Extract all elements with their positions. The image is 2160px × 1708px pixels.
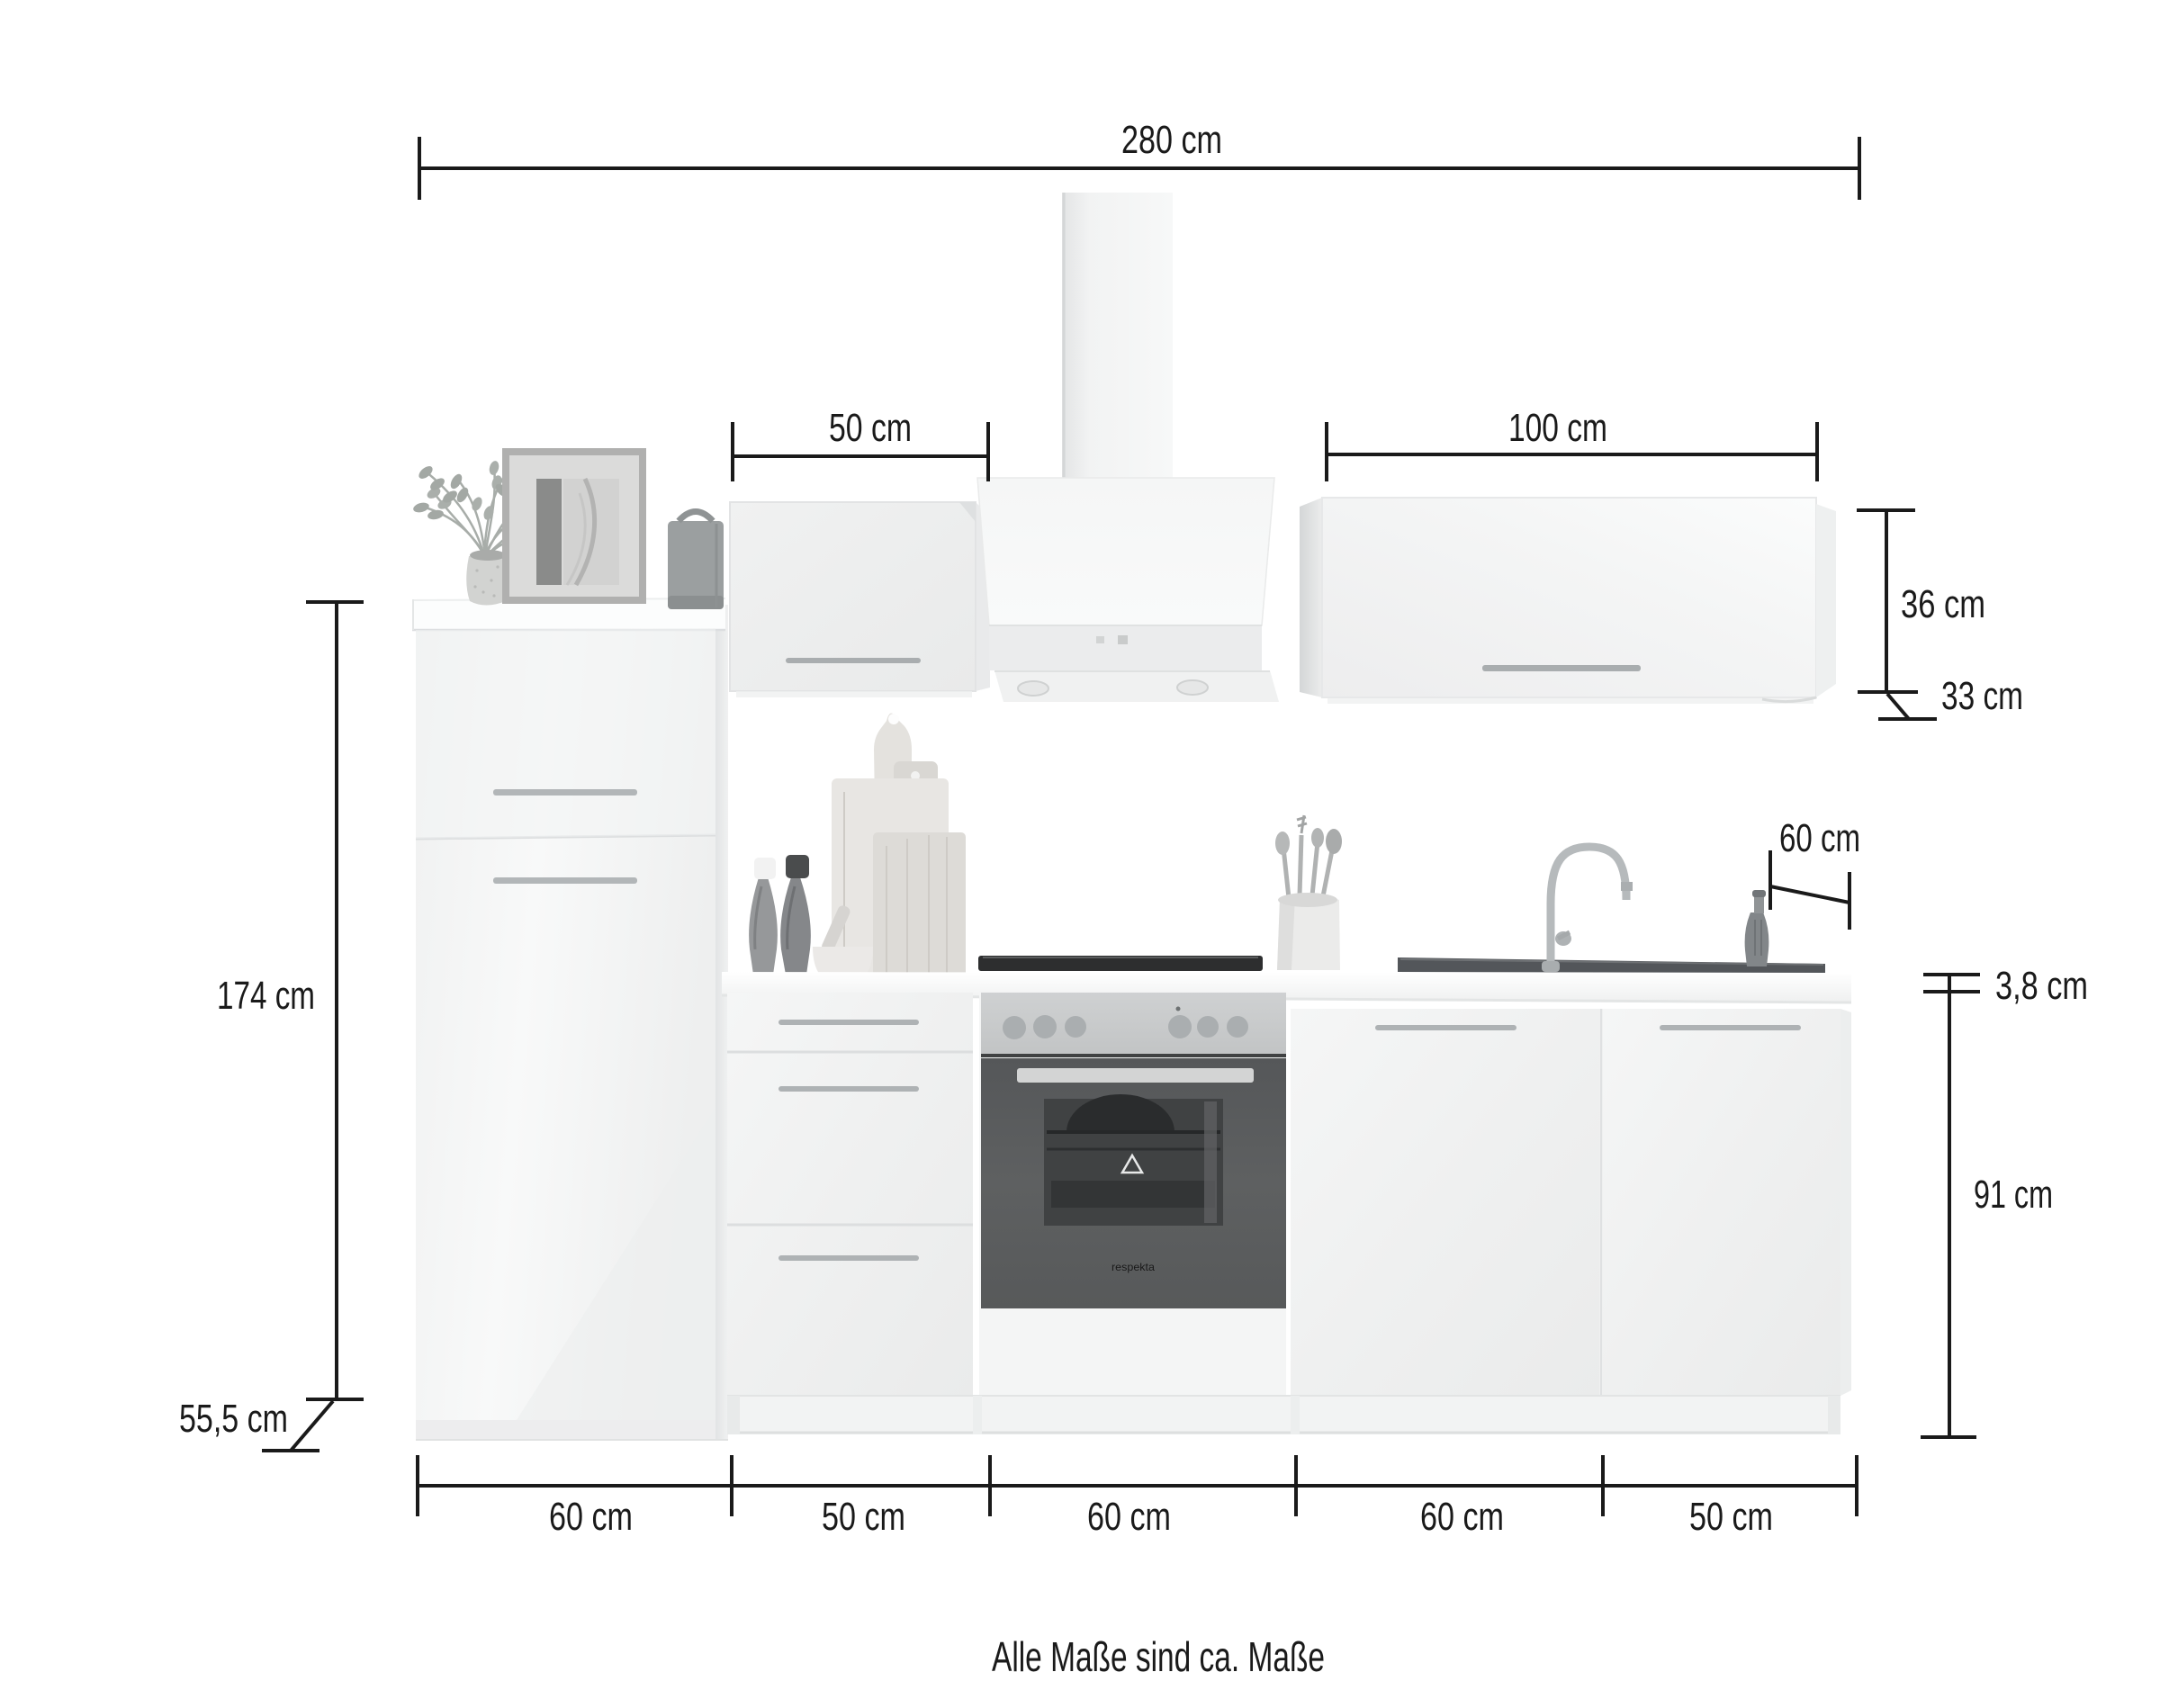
svg-text:174 cm: 174 cm	[217, 974, 315, 1018]
svg-text:91 cm: 91 cm	[1974, 1173, 2053, 1217]
svg-text:50 cm: 50 cm	[822, 1495, 905, 1539]
svg-text:60 cm: 60 cm	[1087, 1495, 1171, 1539]
svg-text:60 cm: 60 cm	[1420, 1495, 1504, 1539]
svg-text:60 cm: 60 cm	[1779, 816, 1860, 860]
svg-text:Alle Maße sind ca. Maße: Alle Maße sind ca. Maße	[992, 1633, 1325, 1680]
svg-text:55,5 cm: 55,5 cm	[179, 1397, 288, 1441]
svg-text:36 cm: 36 cm	[1901, 582, 1985, 626]
svg-text:100 cm: 100 cm	[1508, 406, 1607, 450]
svg-text:50 cm: 50 cm	[829, 406, 912, 450]
svg-text:3,8 cm: 3,8 cm	[1995, 964, 2088, 1008]
svg-text:respekta: respekta	[1111, 1261, 1155, 1273]
svg-text:33 cm: 33 cm	[1941, 674, 2023, 718]
svg-text:280 cm: 280 cm	[1121, 118, 1222, 162]
svg-text:50 cm: 50 cm	[1689, 1495, 1773, 1539]
svg-text:60 cm: 60 cm	[549, 1495, 633, 1539]
